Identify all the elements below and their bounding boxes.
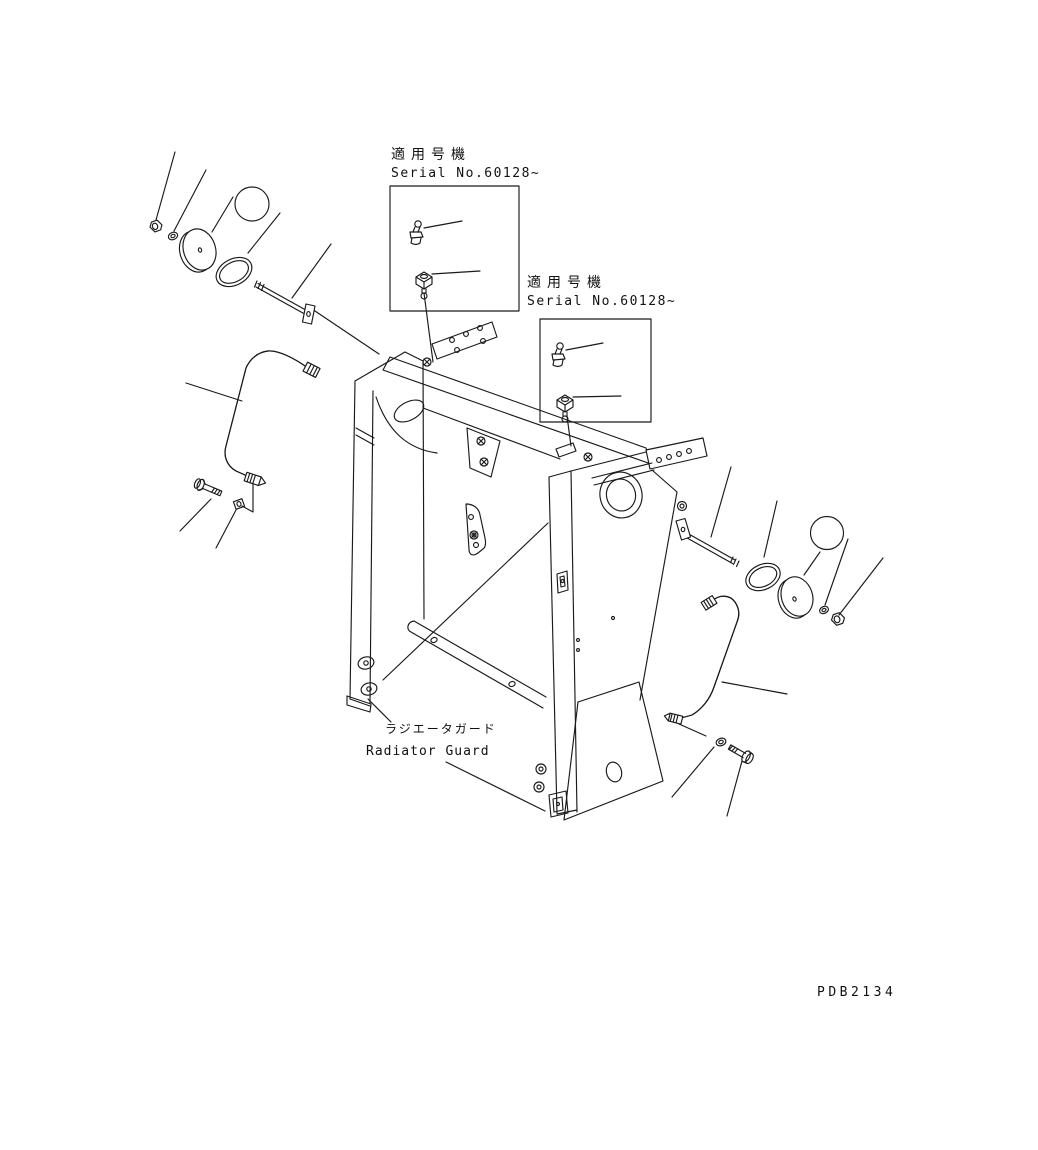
serial-note-title-1: 適用号機 [391,147,471,163]
leader-line [679,724,706,736]
grease-fitting-icon [410,221,423,245]
leader-line [180,499,211,531]
grease-fitting-icon [552,343,565,367]
serial-note-frame-1 [390,186,519,311]
leader-line [727,761,742,816]
leader-line [186,383,242,401]
cover-disc [174,225,221,277]
washer-icon [233,499,244,510]
leader-line [242,484,253,512]
bolt-icon [727,742,756,765]
grease-fitting-icon [557,395,573,422]
nut-icon [149,219,164,233]
serial-note-number-1: Serial No.60128~ [391,167,540,182]
leader-line [424,293,433,362]
leader-line [432,271,480,274]
callout-balloon-right[interactable]: 5 [811,517,844,550]
t-bolt-rod [676,519,739,567]
cover-disc [773,573,818,623]
nut-icon [830,612,846,627]
t-bolt-rod [255,281,316,324]
callout-number: 5 [247,195,257,214]
right-mounting-pipe [663,596,738,724]
washer-icon [167,231,179,242]
washer-icon [715,737,727,747]
o-ring [211,252,257,293]
leader-line [368,699,391,722]
parts-diagram-canvas: 5 5 適用号機 Serial No.60128~ 適用号機 Serial No… [0,0,1038,1150]
left-mounting-pipe [225,351,320,487]
leader-line [216,510,236,548]
leader-line [566,343,603,350]
serial-note-title-2: 適用号機 [527,275,607,291]
leader-line [446,762,545,811]
leader-line [573,396,621,397]
leader-line [424,221,462,228]
washer-icon [818,605,829,615]
part-label-english: Radiator Guard [366,745,490,760]
leader-line [722,682,787,694]
drawing-code: PDB2134 [817,986,896,1001]
part-label-japanese: ラジエータガード [385,723,497,737]
bolt-icon [193,477,223,499]
callout-number: 5 [822,524,832,543]
callout-balloon-left[interactable]: 5 [235,187,269,221]
leader-line [672,747,714,797]
serial-note-number-2: Serial No.60128~ [527,295,676,310]
